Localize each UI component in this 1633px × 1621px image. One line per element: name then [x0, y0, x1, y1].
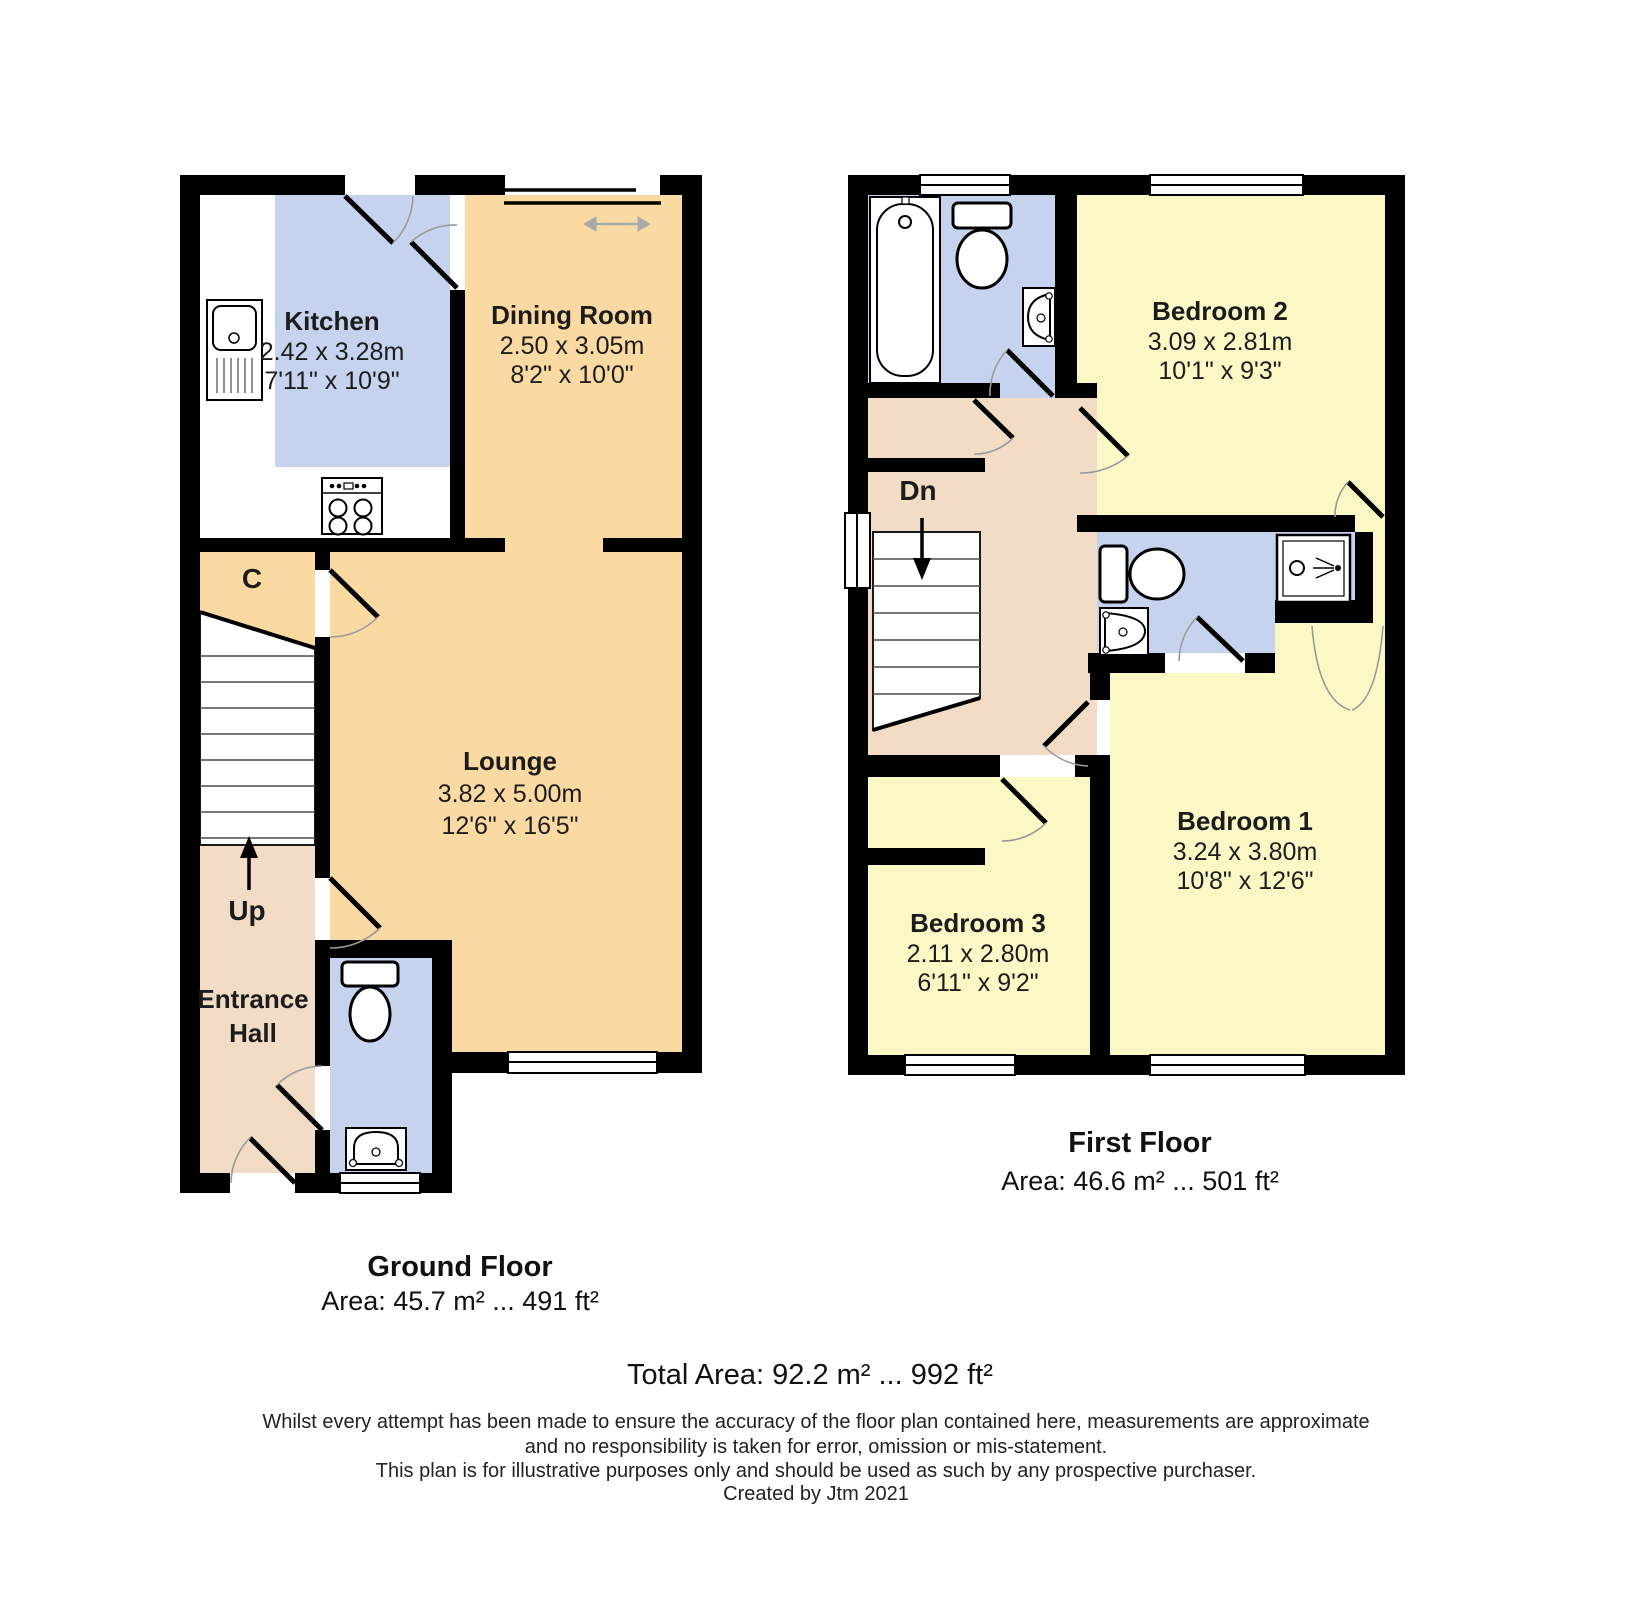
first-floor-plan: Bedroom 2 3.09 x 2.81m 10'1" x 9'3" Bedr…	[845, 175, 1405, 1196]
lounge-label: Lounge	[463, 746, 557, 776]
ground-floor-area: Area: 45.7 m² ... 491 ft²	[321, 1286, 599, 1316]
summary-block: Total Area: 92.2 m² ... 992 ft² Whilst e…	[262, 1359, 1369, 1505]
ground-floor-title: Ground Floor	[367, 1251, 552, 1283]
disclaimer-line-3: This plan is for illustrative purposes o…	[376, 1460, 1257, 1482]
wc-window-icon	[340, 1173, 420, 1193]
first-floor-title: First Floor	[1068, 1127, 1211, 1159]
dining-dim-m: 2.50 x 3.05m	[500, 332, 645, 360]
lounge-dim-m: 3.82 x 5.00m	[438, 780, 583, 808]
floorplan-drawing: Kitchen 2.42 x 3.28m 7'11" x 10'9" Dinin…	[0, 0, 1633, 1621]
bedroom2-window-icon	[1150, 175, 1303, 195]
bedroom1-dim-m: 3.24 x 3.80m	[1173, 838, 1318, 866]
dining-dim-ft: 8'2" x 10'0"	[510, 361, 633, 389]
bedroom3-dim-ft: 6'11" x 9'2"	[917, 969, 1038, 997]
bedroom1-window-icon	[1150, 1055, 1305, 1075]
disclaimer-line-1: Whilst every attempt has been made to en…	[262, 1411, 1369, 1433]
total-area-text: Total Area: 92.2 m² ... 992 ft²	[627, 1359, 993, 1391]
kitchen-sink-icon	[207, 300, 262, 400]
shower-icon	[1277, 535, 1350, 602]
bedroom1-label: Bedroom 1	[1177, 806, 1313, 836]
ground-floor-plan: Kitchen 2.42 x 3.28m 7'11" x 10'9" Dinin…	[180, 175, 702, 1316]
bathroom-basin-icon	[1023, 288, 1055, 346]
stove-icon	[322, 478, 382, 535]
bedroom3-dim-m: 2.11 x 2.80m	[907, 940, 1050, 968]
bathroom-window-icon	[920, 175, 1010, 195]
dining-label: Dining Room	[491, 300, 653, 330]
bedroom3-label: Bedroom 3	[910, 908, 1046, 938]
bedroom2-label: Bedroom 2	[1152, 296, 1288, 326]
kitchen-dim-ft: 7'11" x 10'9"	[264, 367, 399, 395]
hall-label-2: Hall	[229, 1018, 277, 1048]
bathroom-toilet-icon	[953, 203, 1011, 288]
lounge-dim-ft: 12'6" x 16'5"	[441, 812, 578, 840]
cupboard-label: C	[242, 563, 262, 594]
credit-text: Created by Jtm 2021	[723, 1483, 909, 1505]
hall-label-1: Entrance	[197, 984, 308, 1014]
disclaimer-line-2: and no responsibility is taken for error…	[525, 1436, 1107, 1458]
bedroom1-dim-ft: 10'8" x 12'6"	[1176, 867, 1313, 895]
landing-window-icon	[845, 513, 870, 588]
bedroom2-dim-m: 3.09 x 2.81m	[1148, 328, 1293, 356]
bedroom3-window-icon	[905, 1055, 1015, 1075]
first-floor-area: Area: 46.6 m² ... 501 ft²	[1001, 1166, 1279, 1196]
dining-lounge-opening	[505, 538, 603, 552]
dn-label: Dn	[899, 475, 936, 506]
shower-room-toilet-icon	[1100, 546, 1184, 602]
kitchen-dim-m: 2.42 x 3.28m	[260, 338, 405, 366]
bathtub-icon	[870, 197, 940, 383]
stairs-first	[873, 518, 980, 730]
wc-basin-icon	[346, 1128, 406, 1170]
shower-room-basin-icon	[1100, 608, 1148, 655]
bedroom2-dim-ft: 10'1" x 9'3"	[1158, 357, 1281, 385]
floorplan-page: Kitchen 2.42 x 3.28m 7'11" x 10'9" Dinin…	[0, 0, 1633, 1621]
lounge-window-icon	[508, 1052, 657, 1073]
up-label: Up	[228, 895, 265, 926]
kitchen-label: Kitchen	[284, 306, 379, 336]
